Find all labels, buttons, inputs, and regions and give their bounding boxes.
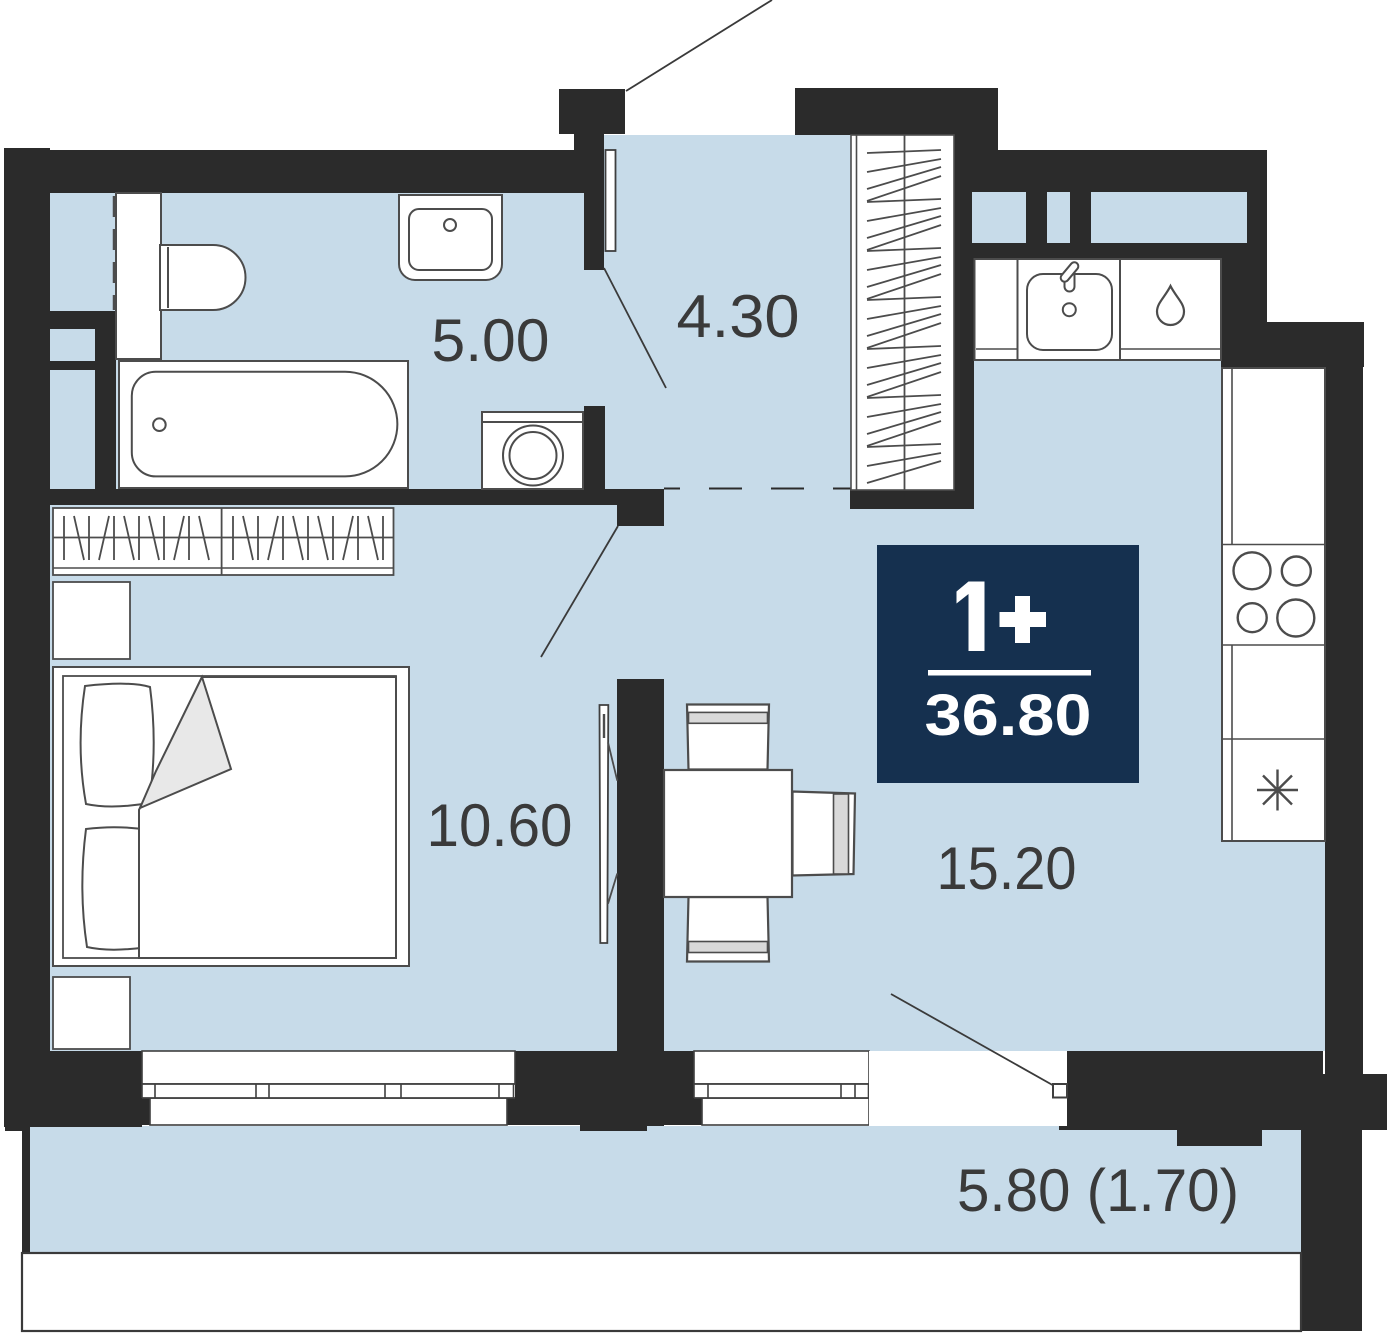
svg-text:5.00: 5.00 [432,307,550,374]
svg-text:36.80: 36.80 [925,683,1092,748]
svg-text:5.80 (1.70): 5.80 (1.70) [957,1157,1239,1224]
svg-text:4.30: 4.30 [677,283,800,350]
svg-text:10.60: 10.60 [427,792,573,859]
svg-text:15.20: 15.20 [937,835,1077,902]
